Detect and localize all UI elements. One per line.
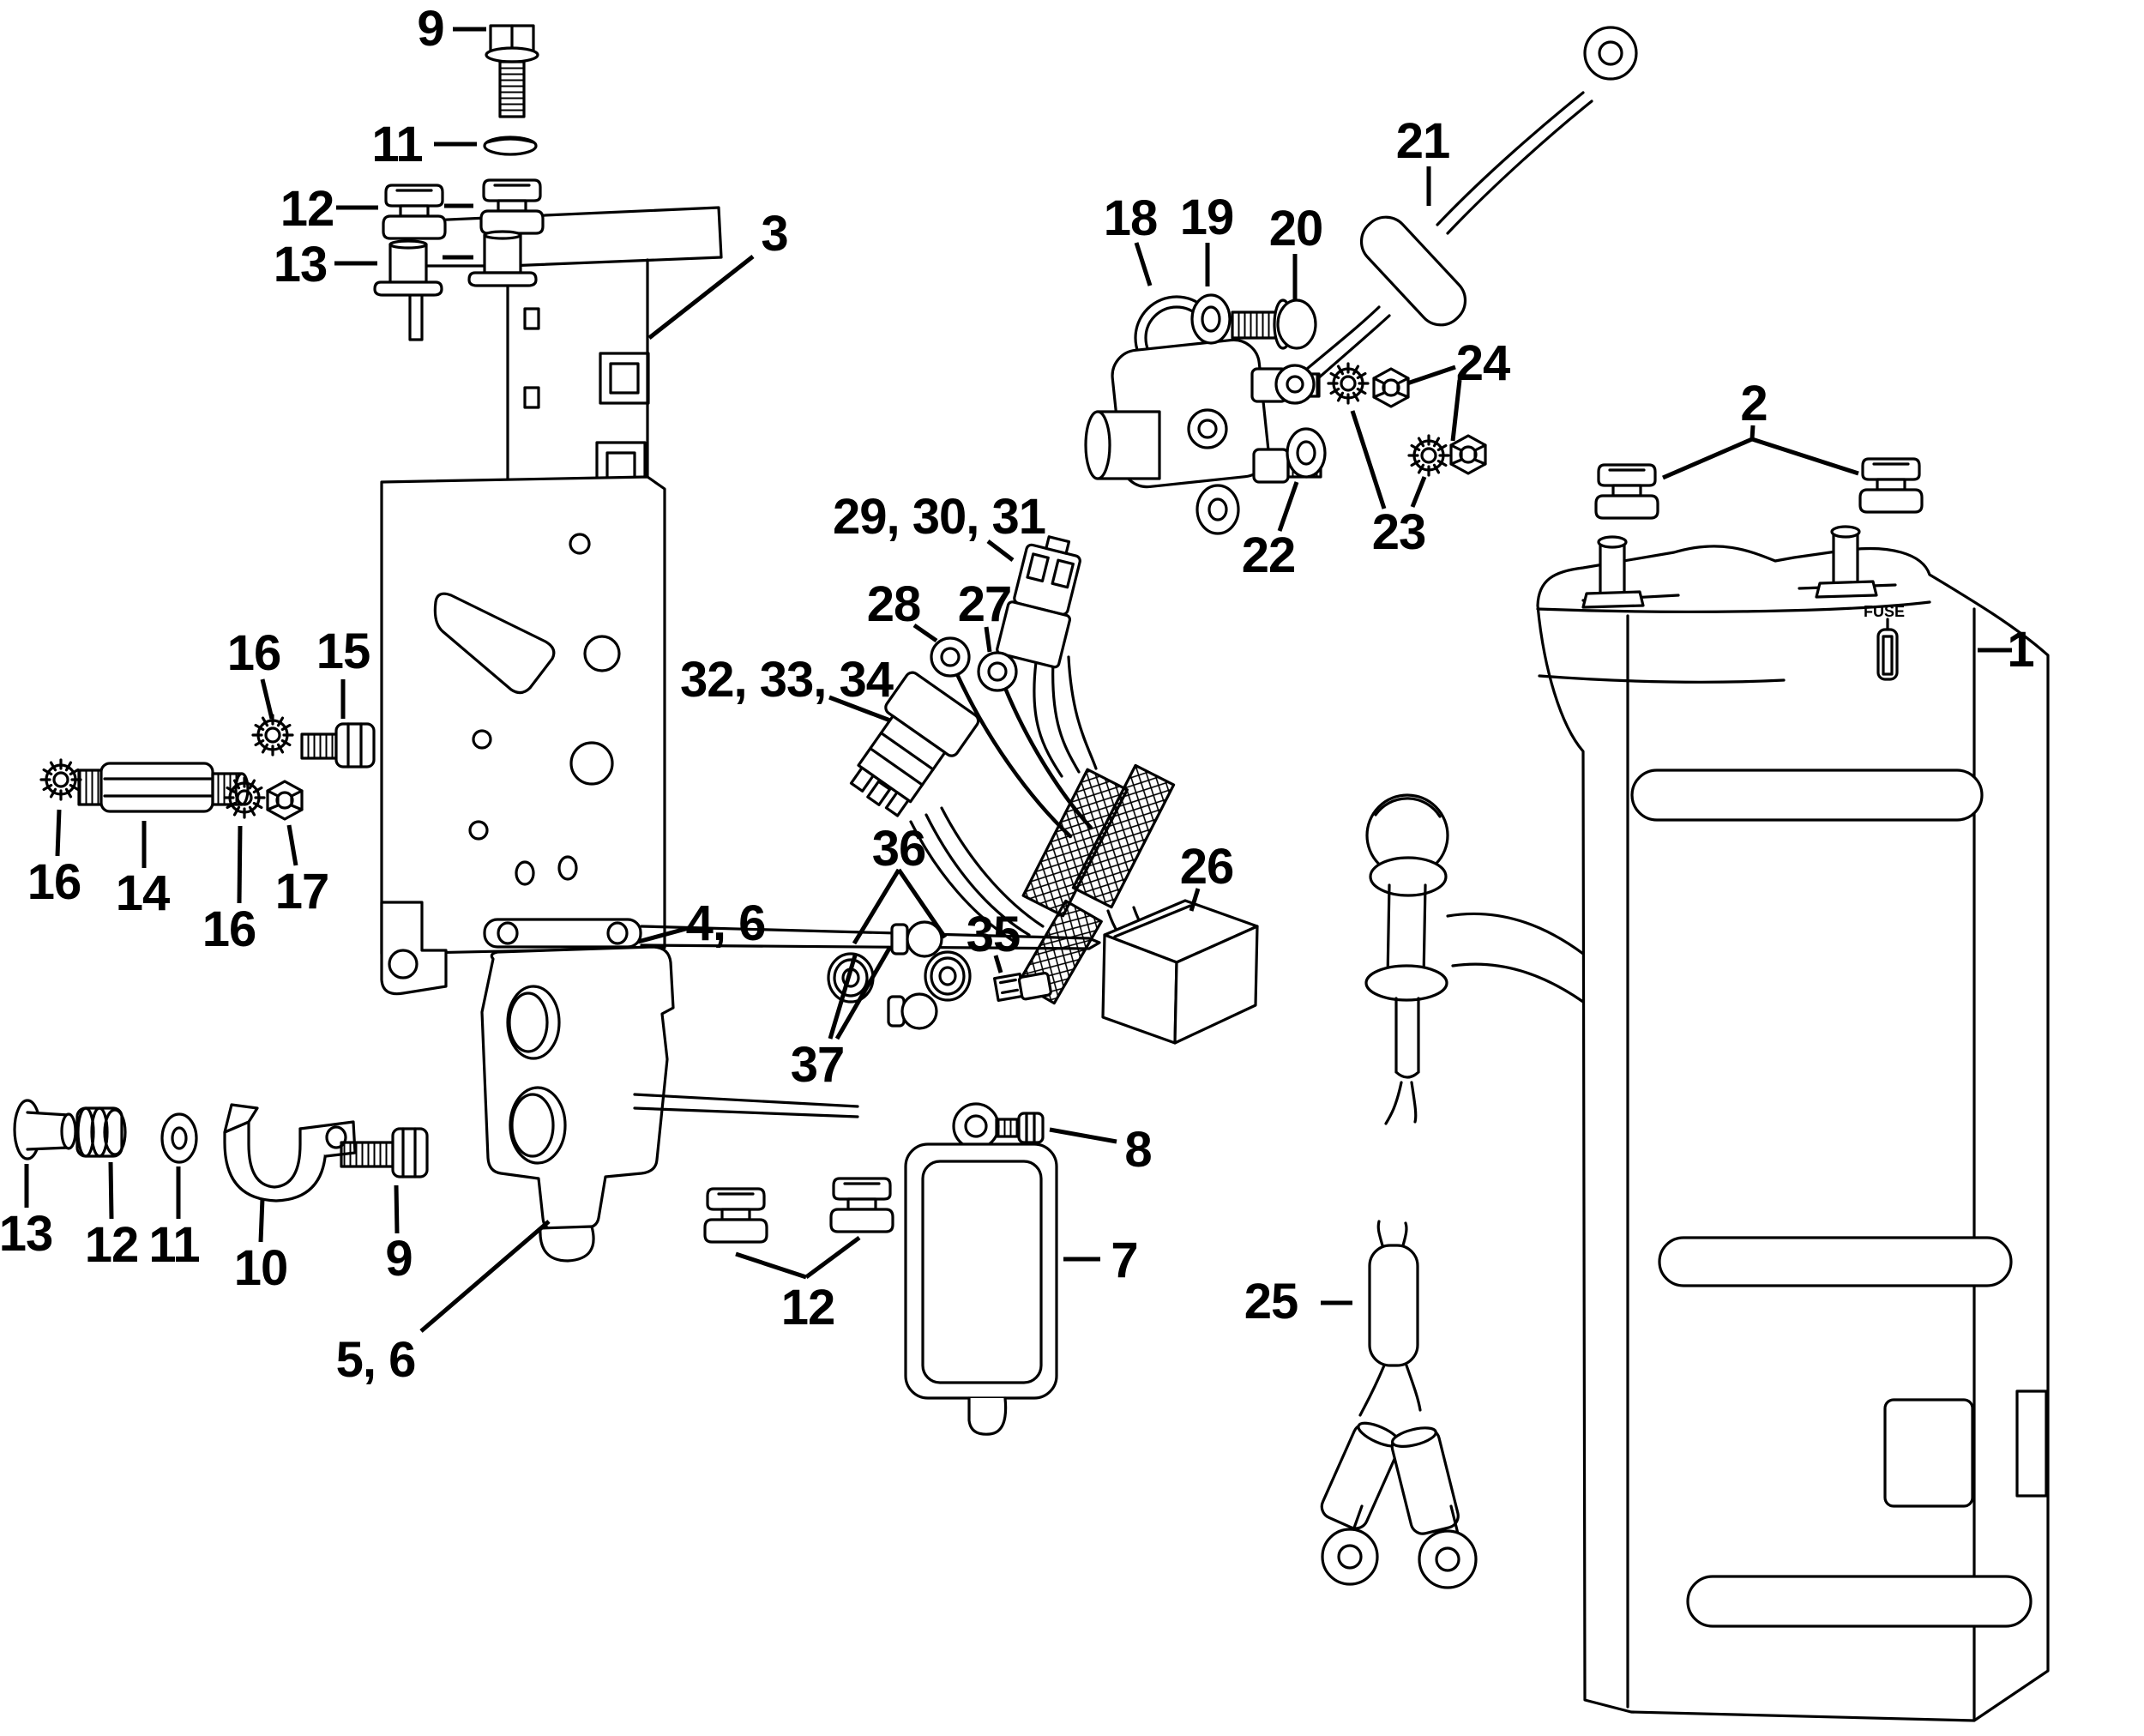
callout-label-35: 35 (967, 907, 1021, 962)
callout-label-28: 28 (867, 576, 921, 632)
leader-line (261, 1198, 262, 1242)
parts-diagram: FUSE 911121331615161416174, 63635372629,… (0, 0, 2144, 1736)
bracket-lower-5-6 (482, 947, 858, 1261)
leader-line (1407, 367, 1455, 383)
diagram-canvas: FUSE 911121331615161416174, 63635372629,… (0, 0, 2144, 1736)
callout-label-10: 10 (234, 1240, 288, 1296)
star-washer-16-a (253, 715, 292, 755)
callout-label-11: 11 (148, 1217, 199, 1273)
grommet-37-a (828, 954, 873, 1002)
callout-label-5-6: 5, 6 (336, 1332, 416, 1388)
callout-label-16: 16 (227, 625, 281, 681)
grommet-2-b (1860, 459, 1922, 512)
callout-label-1: 1 (2007, 622, 2033, 678)
leader-line (736, 1254, 806, 1277)
leader-line (1136, 243, 1150, 286)
callout-label-17: 17 (275, 864, 329, 919)
callout-label-14: 14 (116, 865, 170, 921)
leader-line (1352, 411, 1384, 509)
callout-label-16: 16 (27, 854, 81, 910)
callout-label-4-6: 4, 6 (686, 895, 766, 951)
leader-line (239, 826, 240, 903)
callout-label-19: 19 (1180, 190, 1234, 245)
leader-line (649, 256, 753, 338)
leader-line (1050, 1130, 1117, 1142)
callout-label-13: 13 (274, 237, 328, 292)
grommet-12-e (77, 1108, 125, 1156)
grommet-12-b (481, 180, 543, 233)
callout-label-16: 16 (202, 901, 256, 957)
callout-label-32-33-34: 32, 33, 34 (680, 652, 894, 708)
leader-line (806, 1238, 859, 1277)
callout-label-24: 24 (1456, 335, 1510, 391)
callout-label-23: 23 (1372, 504, 1426, 560)
leader-line (1280, 482, 1297, 531)
callout-label-12: 12 (280, 181, 334, 237)
callout-label-9: 9 (417, 1, 443, 57)
washer-11-b (162, 1114, 196, 1162)
callout-label-27: 27 (958, 576, 1012, 632)
leader-line (57, 810, 59, 856)
callout-label-36: 36 (872, 821, 926, 877)
callout-label-12: 12 (781, 1280, 835, 1335)
callout-label-9: 9 (385, 1231, 412, 1287)
washer-22 (1287, 429, 1325, 477)
star-washer-23-b (1409, 436, 1448, 475)
callout-label-15: 15 (316, 624, 370, 679)
ring-terminal-27 (979, 653, 1016, 690)
washer-11-top (485, 137, 536, 154)
bushing-13-b (15, 1100, 75, 1159)
leader-line (262, 679, 272, 719)
callout-label-26: 26 (1180, 839, 1234, 895)
relay-26 (1103, 901, 1257, 1043)
leader-line (111, 1162, 111, 1219)
callout-label-21: 21 (1396, 113, 1450, 169)
bulb-36-b (888, 994, 936, 1028)
leader-line (1663, 439, 1752, 478)
callout-label-18: 18 (1104, 190, 1158, 246)
nut-17 (268, 781, 302, 819)
bolt-15 (302, 724, 374, 767)
module-7 (906, 1104, 1057, 1434)
grommet-2-a (1596, 465, 1658, 518)
washer-19 (1192, 295, 1230, 343)
callout-label-13: 13 (0, 1206, 52, 1262)
bracket-upper-3 (382, 208, 721, 994)
callout-label-12: 12 (85, 1217, 139, 1273)
leader-line (1412, 477, 1424, 507)
star-washer-23-a (1328, 364, 1368, 403)
callout-label-2: 2 (1740, 376, 1767, 431)
callout-label-37: 37 (791, 1037, 845, 1093)
callout-label-20: 20 (1269, 201, 1323, 256)
callout-label-8: 8 (1124, 1122, 1151, 1178)
bulb-36-a (892, 922, 942, 956)
nut-24-b (1451, 436, 1485, 473)
grommet-12-c (705, 1189, 767, 1242)
callout-label-22: 22 (1242, 527, 1296, 583)
clamp-10 (225, 1105, 355, 1201)
bolt-9-top (486, 26, 538, 117)
callout-label-3: 3 (761, 206, 787, 262)
ring-terminal-28 (931, 638, 969, 676)
standoff-14 (79, 763, 248, 811)
callout-label-29-30-31: 29, 30, 31 (833, 489, 1045, 545)
callout-label-11: 11 (371, 117, 422, 172)
screw-8 (997, 1113, 1043, 1142)
leader-line (1752, 439, 1858, 473)
leader-line (396, 1185, 397, 1233)
leader-line (289, 825, 296, 865)
cable-assembly-25 (1318, 795, 1583, 1588)
star-washer-16-b (41, 760, 81, 799)
fuse-label: FUSE (1864, 603, 1905, 620)
cover-1 (1538, 546, 2048, 1721)
callout-label-7: 7 (1111, 1233, 1137, 1288)
grommet-12-a (383, 185, 445, 238)
grommet-37-b (925, 952, 970, 1000)
callout-label-25: 25 (1244, 1274, 1298, 1329)
leader-line (421, 1221, 549, 1331)
grommet-12-d (831, 1178, 893, 1232)
nut-24-a (1374, 369, 1408, 407)
